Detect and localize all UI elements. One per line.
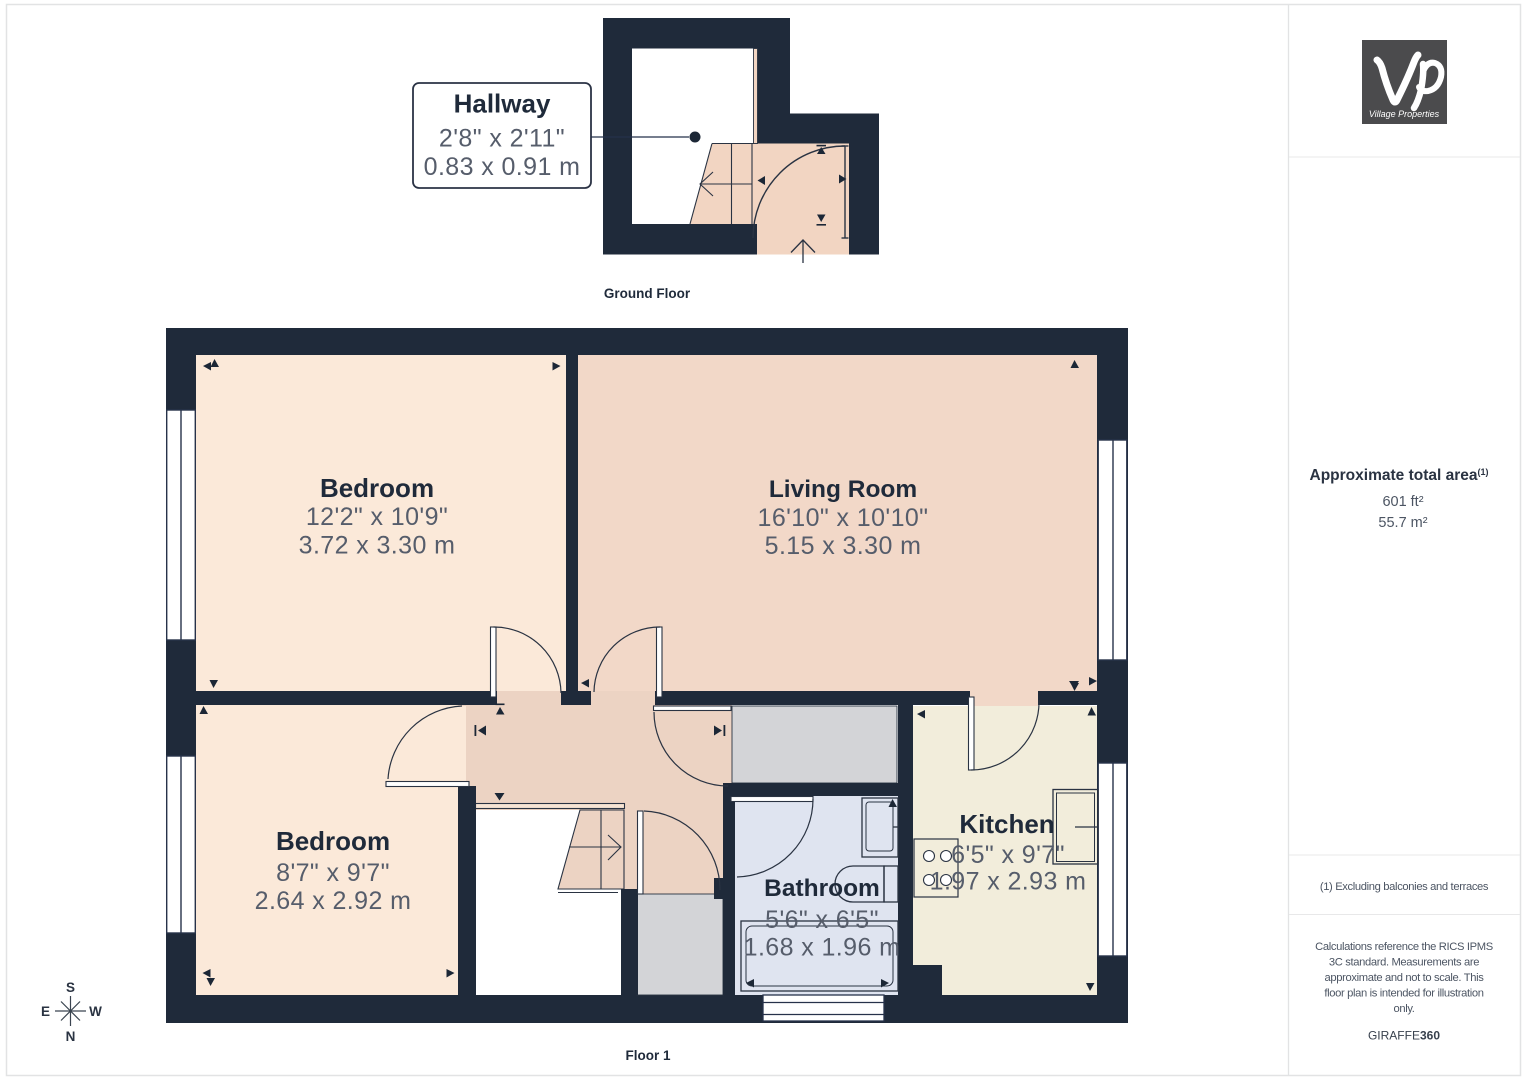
svg-text:N: N	[66, 1029, 76, 1044]
svg-text:(1) Excluding balconies and te: (1) Excluding balconies and terraces	[1320, 881, 1489, 893]
svg-text:Hallway: Hallway	[454, 89, 551, 119]
svg-text:GIRAFFE360: GIRAFFE360	[1368, 1029, 1440, 1043]
svg-text:1.68 x 1.96 m: 1.68 x 1.96 m	[744, 934, 901, 962]
svg-text:W: W	[89, 1004, 102, 1019]
svg-text:floor plan is intended for ill: floor plan is intended for illustration	[1324, 988, 1483, 1000]
svg-text:Calculations reference the RIC: Calculations reference the RICS IPMS	[1315, 941, 1493, 953]
svg-text:2.64 x 2.92 m: 2.64 x 2.92 m	[255, 887, 412, 915]
svg-text:6'5" x 9'7": 6'5" x 9'7"	[951, 841, 1065, 869]
svg-text:approximate and not to scale.: approximate and not to scale. This	[1325, 972, 1485, 984]
svg-text:5'6" x 6'5": 5'6" x 6'5"	[765, 906, 879, 934]
svg-text:2'8" x 2'11": 2'8" x 2'11"	[439, 125, 565, 153]
svg-text:601 ft²: 601 ft²	[1382, 494, 1423, 510]
svg-text:E: E	[41, 1004, 50, 1019]
svg-text:Approximate total area(1): Approximate total area(1)	[1310, 467, 1489, 484]
svg-text:Floor 1: Floor 1	[625, 1048, 670, 1063]
svg-text:55.7 m²: 55.7 m²	[1378, 515, 1427, 531]
svg-text:3.72 x 3.30 m: 3.72 x 3.30 m	[299, 532, 456, 560]
svg-text:Bedroom: Bedroom	[320, 473, 434, 503]
svg-text:16'10" x 10'10": 16'10" x 10'10"	[758, 504, 929, 532]
svg-text:5.15 x 3.30 m: 5.15 x 3.30 m	[765, 532, 922, 560]
svg-text:only.: only.	[1393, 1003, 1414, 1015]
svg-text:1.97 x 2.93 m: 1.97 x 2.93 m	[930, 868, 1087, 896]
svg-text:8'7" x 9'7": 8'7" x 9'7"	[276, 859, 390, 887]
svg-text:12'2" x 10'9": 12'2" x 10'9"	[306, 503, 448, 531]
svg-text:Ground Floor: Ground Floor	[604, 286, 691, 301]
svg-text:S: S	[66, 980, 75, 995]
svg-text:Bathroom: Bathroom	[764, 875, 880, 902]
svg-text:Bedroom: Bedroom	[276, 826, 390, 856]
svg-text:0.83 x 0.91 m: 0.83 x 0.91 m	[424, 153, 581, 181]
svg-text:3C standard. Measurements are: 3C standard. Measurements are	[1329, 957, 1479, 969]
svg-text:Living Room: Living Room	[769, 476, 917, 503]
svg-text:Village Properties: Village Properties	[1369, 109, 1440, 119]
svg-text:Kitchen: Kitchen	[959, 809, 1054, 839]
